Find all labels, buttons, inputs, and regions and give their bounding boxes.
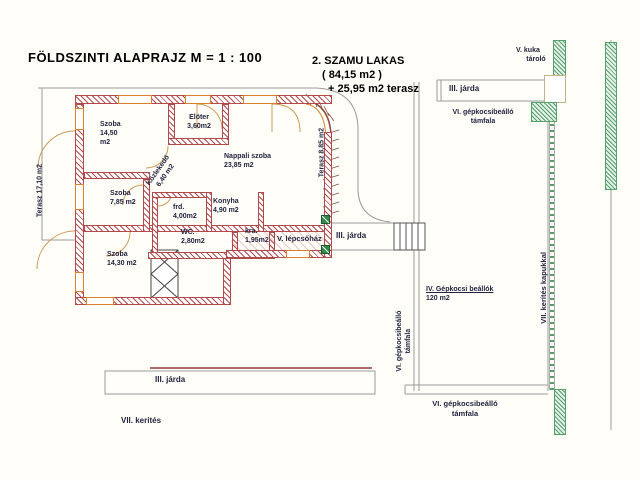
entry-door-opening <box>185 95 211 104</box>
parking-spaces-label: IV. Gépkocsi beállók 120 m2 <box>426 285 493 303</box>
apartment-note: 2. SZAMU LAKAS ( 84,15 m2 ) + 25,95 m2 t… <box>312 55 419 96</box>
bin-store-wall-bottom <box>531 102 557 122</box>
window-top-1 <box>118 95 152 104</box>
wall-entry-right <box>222 104 229 140</box>
staircase <box>394 223 425 250</box>
room-label-szoba-3: Szoba 14,30 m2 <box>107 250 137 268</box>
wall-bedroom-divider <box>84 172 150 179</box>
room-label-furdo: frd. 4,00m2 <box>173 203 197 221</box>
window-bottom-1 <box>86 297 114 305</box>
room-label-szoba-1: Szoba 14,50 m2 <box>100 120 121 147</box>
wall-bath-right <box>206 192 212 232</box>
window-left-3 <box>75 272 84 292</box>
fence-with-gates-label: VII. kerítés kapukkal <box>539 238 549 338</box>
room-label-eloter: Elöter 3,60m2 <box>176 113 222 131</box>
carport-retaining-bottom-label: VI. gépkocsibeálló támfala <box>425 399 505 419</box>
floor-plan-canvas: FÖLDSZINTI ALAPRAJZ M = 1 : 100 2. SZAMU… <box>0 0 640 480</box>
meter-box-icon <box>321 245 330 254</box>
wall-bath-top <box>152 192 212 198</box>
room-label-wc: WC. 2,80m2 <box>181 228 205 246</box>
bin-store-door-area <box>544 75 566 103</box>
walkway-mid-label: III. járda <box>336 231 366 241</box>
room-label-nappali: Nappali szoba 23,85 m2 <box>224 152 271 170</box>
apartment-note-line1: 2. SZAMU LAKAS <box>312 55 419 69</box>
wall-bath-left <box>152 192 158 259</box>
terrace-right-label: Terasz 8,85 m2 <box>317 112 326 194</box>
window-left-1 <box>75 108 84 130</box>
page-title: FÖLDSZINTI ALAPRAJZ M = 1 : 100 <box>28 50 262 65</box>
carport-retaining-vert-label: VI. gépkocsibeálló támfala <box>395 291 413 391</box>
parking-bottom-edge <box>405 385 548 394</box>
room-label-konyha: Konyha 4,90 m2 <box>213 197 239 215</box>
walkway-top-label: III. járda <box>449 84 479 94</box>
wall-kitchen-right <box>258 192 264 232</box>
terrace-left-label: Terasz 17,10 m2 <box>35 150 44 232</box>
walkway-bottom-band <box>105 371 375 394</box>
terrace-outline-left <box>42 88 75 240</box>
wall-stairwell-bottom <box>226 250 332 258</box>
room-label-kamra: kra. 1,95m2 <box>245 227 269 245</box>
apartment-note-line2: ( 84,15 m2 ) <box>322 69 419 83</box>
fence-bottom-label: VII. kerités <box>121 416 161 426</box>
window-left-2 <box>75 184 84 210</box>
walkway-bottom-label: III. járda <box>155 375 185 385</box>
window-top-2 <box>243 95 277 104</box>
boundary-wall-right <box>605 42 617 190</box>
wall-lower-wing-right <box>223 256 231 305</box>
fence-with-gates-line <box>549 104 555 390</box>
meter-box-icon <box>321 215 330 224</box>
bin-store-label: V. kuka tároló <box>516 46 556 64</box>
retaining-wall-bottom-right <box>554 389 566 435</box>
stairwell-door-opening <box>286 250 310 258</box>
wall-entry-left <box>168 104 175 140</box>
room-label-lepcsohaz: V. lépcsőház <box>277 234 322 244</box>
carport-retaining-top-label: VI. gépkocsibeálló támfala <box>443 108 523 126</box>
apartment-note-line3: + 25,95 m2 terasz <box>328 83 419 97</box>
